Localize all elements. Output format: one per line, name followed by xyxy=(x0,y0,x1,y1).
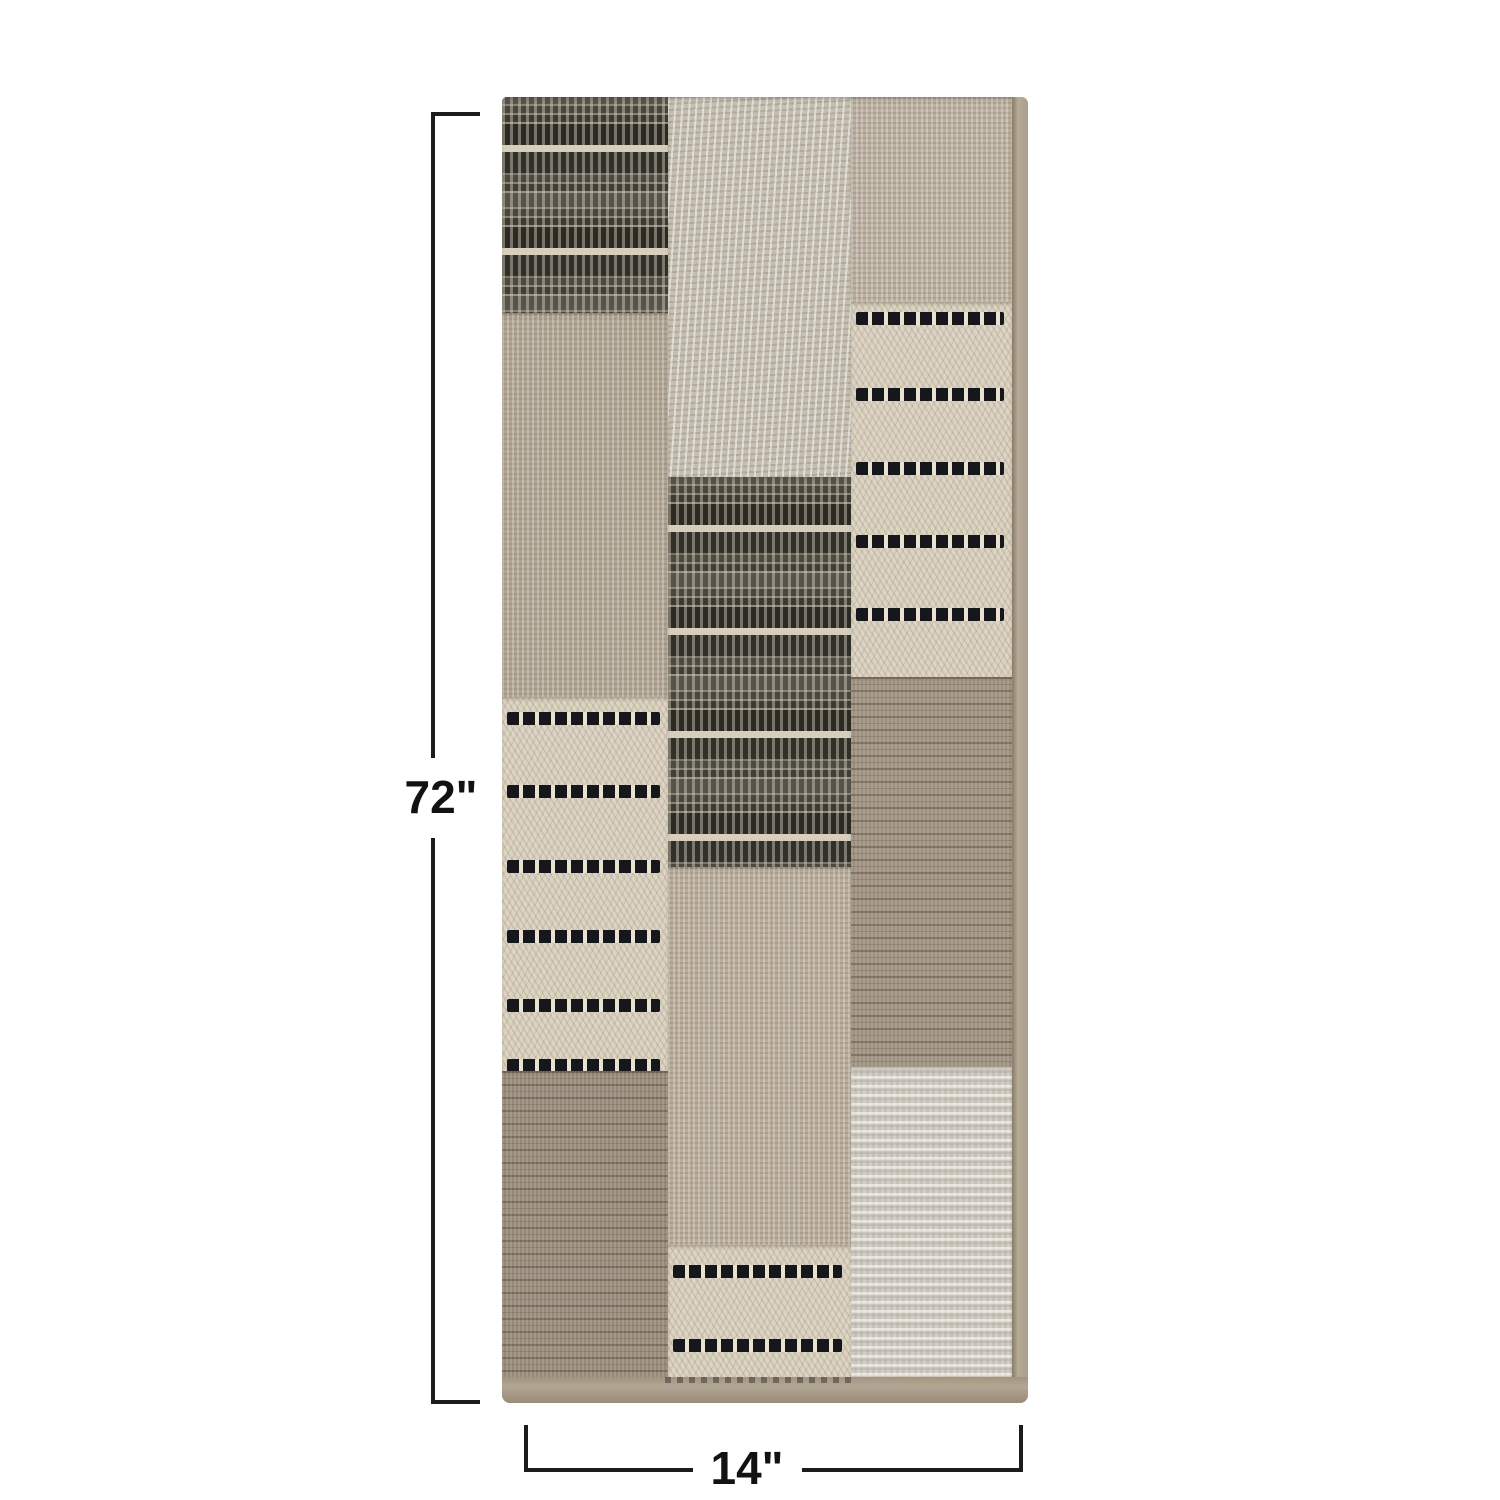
dash-stripe xyxy=(507,930,660,943)
width-dimension-tick-right xyxy=(1019,1425,1023,1472)
dash-stripe xyxy=(856,535,1004,548)
fabric-patch-brown-stripes xyxy=(502,1071,668,1377)
fabric-patch-gray-heather-h xyxy=(851,1067,1012,1377)
fabric-panel-right xyxy=(851,97,1012,1377)
fabric-panel-left xyxy=(502,97,668,1377)
fabric-panels xyxy=(502,97,1012,1377)
height-dimension-tick-bottom xyxy=(431,1400,480,1404)
fabric-patch-cream-dashes xyxy=(851,302,1012,677)
dash-stripe xyxy=(507,860,660,873)
height-label: 72" xyxy=(361,769,521,825)
fabric-patch-cream-dashes xyxy=(502,697,668,1071)
width-label: 14" xyxy=(667,1440,827,1496)
height-dimension-line-upper xyxy=(431,112,435,758)
dash-stripe xyxy=(856,462,1004,475)
fabric-patch-cream-dashes xyxy=(668,1245,851,1377)
height-dimension-tick-top xyxy=(431,112,480,116)
fabric-patch-brown-stripes xyxy=(851,677,1012,1067)
fabric-patch-gray-heather xyxy=(668,97,851,477)
hem-stitch xyxy=(665,1377,854,1383)
dash-stripe xyxy=(507,785,660,798)
width-dimension-line-right xyxy=(802,1468,1023,1472)
dash-stripe xyxy=(673,1339,841,1352)
fabric-patch-linen xyxy=(851,97,1012,302)
folded-edge xyxy=(1012,97,1028,1377)
bottom-hem xyxy=(502,1377,1028,1403)
height-dimension-line-lower xyxy=(431,838,435,1404)
fabric-patch-dark-stripes xyxy=(668,477,851,867)
dash-stripe xyxy=(856,388,1004,401)
dash-stripe xyxy=(507,712,660,725)
fabric-patch-linen xyxy=(668,867,851,1245)
width-dimension-tick-left xyxy=(524,1425,528,1472)
dash-stripe xyxy=(673,1265,841,1278)
fabric-patch-linen xyxy=(502,313,668,697)
dash-stripe xyxy=(856,312,1004,325)
dash-stripe xyxy=(507,999,660,1012)
fabric-patch-dark-stripes xyxy=(502,97,668,313)
dash-stripe xyxy=(856,608,1004,621)
fabric-panel-center xyxy=(668,97,851,1377)
product-photo xyxy=(502,97,1028,1403)
